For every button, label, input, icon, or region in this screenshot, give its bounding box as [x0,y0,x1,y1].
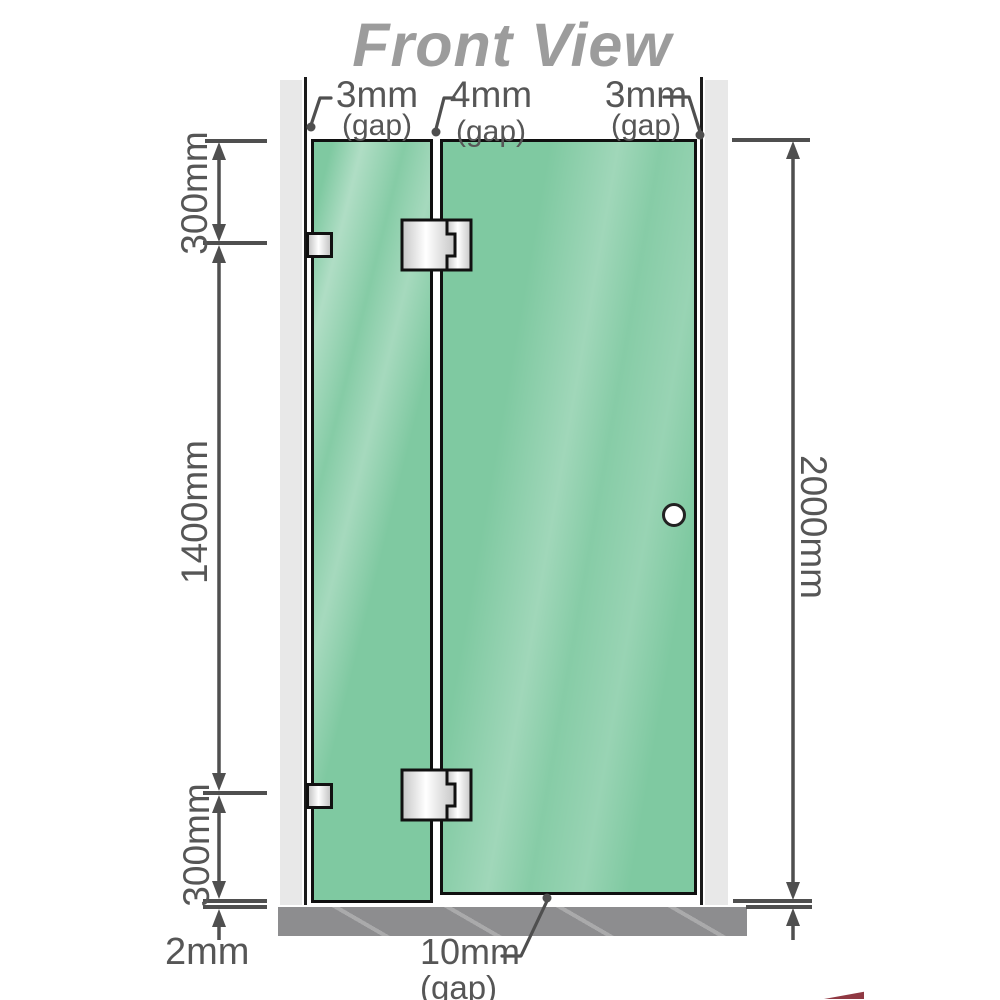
label-segment-bottom: 300mm [176,783,218,906]
gap-value: 4mm [443,76,539,113]
gap-value: 10mm [420,934,540,970]
label-floor-clearance: 2mm [165,931,249,974]
glass-hinge-top [400,218,473,272]
gap-qualifier: (gap) [327,111,427,141]
watermark-fragment [824,991,864,999]
door-glass-panel [440,139,697,895]
front-view-diagram: Front View [0,0,1000,1000]
label-gap-top-middle: 4mm (gap) [443,76,539,147]
diagram-title: Front View [352,10,672,80]
label-overall-height: 2000mm [792,455,834,599]
wall-profile-right [705,80,728,905]
wall-channel-line-left [304,77,307,905]
label-segment-middle: 1400mm [174,440,216,584]
label-gap-top-left: 3mm (gap) [327,76,427,141]
wall-bracket-top [306,232,333,258]
gap-qualifier: (gap) [420,971,540,1000]
glass-hinge-bottom [400,768,473,822]
wall-channel-line-right [700,77,703,905]
label-gap-top-right: 3mm (gap) [598,76,694,141]
gap-value: 3mm [598,76,694,113]
label-segment-top: 300mm [174,131,216,254]
door-handle-knob [662,503,686,527]
wall-bracket-bottom [306,783,333,809]
gap-qualifier: (gap) [443,117,539,147]
gap-qualifier: (gap) [598,111,694,141]
gap-value: 3mm [327,76,427,113]
wall-profile-left [280,80,302,905]
label-door-bottom-gap: 10mm (gap) [420,934,540,1000]
